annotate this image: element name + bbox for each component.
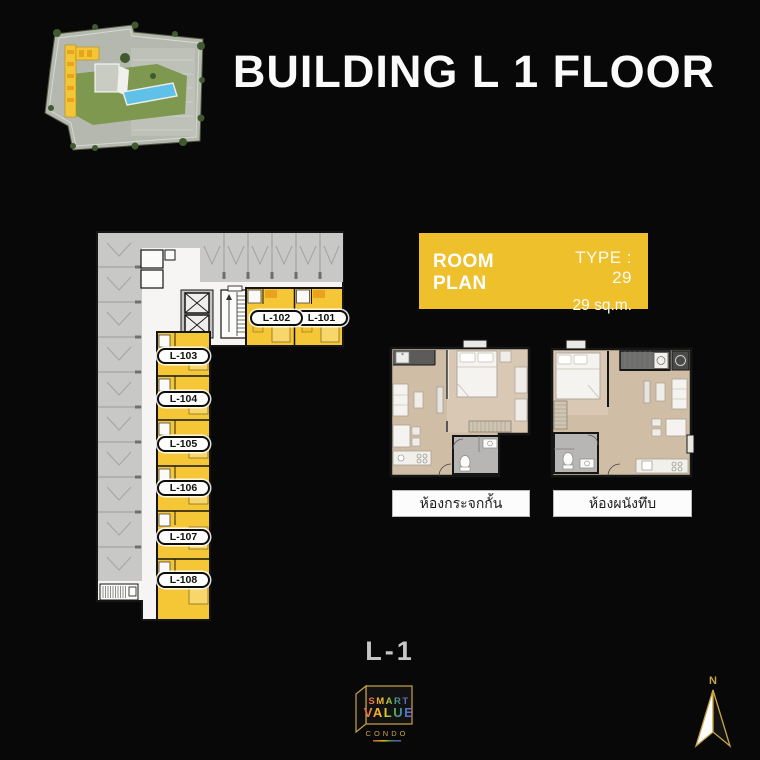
site-plan-map — [35, 18, 220, 158]
compass-north-label: N — [709, 675, 717, 687]
unit-label-l106[interactable]: L-106 — [157, 480, 210, 496]
room-variant-tab-glass[interactable]: ห้องกระจกกั้น — [392, 490, 530, 517]
kitchen — [393, 350, 435, 365]
ramp — [100, 584, 138, 600]
kitchen — [636, 459, 688, 473]
logo-word-condo: CONDO — [366, 729, 409, 738]
parking-left — [98, 233, 142, 581]
room-variant-tab-solid[interactable]: ห้องผนังทึบ — [553, 490, 692, 517]
bed — [556, 353, 600, 399]
north-compass: N — [683, 670, 743, 755]
logo-word-value: VALUE — [364, 705, 415, 720]
wardrobe — [554, 401, 567, 429]
ac-ledge — [566, 340, 586, 349]
bathroom — [554, 433, 598, 473]
compass-arrow-dark-half — [713, 690, 730, 746]
kitchenette — [393, 451, 431, 465]
page: BUILDING L 1 FLOOR — [0, 0, 760, 760]
logo-tagline-bar — [373, 740, 401, 742]
compass-arrow-icon — [696, 690, 713, 746]
page-title: BUILDING L 1 FLOOR — [228, 46, 720, 98]
court-building — [95, 64, 119, 92]
room-area-value: 29 sq.m. — [551, 297, 632, 315]
unit-label-l102[interactable]: L-102 — [250, 310, 303, 326]
ac-ledge — [463, 340, 487, 348]
bathroom — [453, 436, 499, 474]
unit-label-l105[interactable]: L-105 — [157, 436, 210, 452]
bed — [457, 351, 497, 397]
unit-label-l107[interactable]: L-107 — [157, 529, 210, 545]
site-plan-thumbnail — [35, 18, 220, 158]
unit-label-l104[interactable]: L-104 — [157, 391, 210, 407]
room-plan-panel: ROOM PLAN TYPE : 29 29 sq.m. — [419, 233, 648, 309]
balcony — [620, 351, 670, 370]
room-type-value: TYPE : 29 — [551, 248, 632, 288]
side-ledge — [687, 435, 694, 453]
sofa — [393, 384, 408, 416]
floor-plan-drawing — [95, 230, 345, 622]
wardrobe — [469, 421, 511, 432]
ac-unit — [672, 351, 689, 370]
building-floor-plan: L-101 L-102 L-103 L-104 L-105 L-106 L-10… — [95, 230, 345, 622]
unit-label-l103[interactable]: L-103 — [157, 348, 210, 364]
elevator-core — [181, 290, 213, 338]
unit-label-l108[interactable]: L-108 — [157, 572, 210, 588]
room-plan-heading: ROOM PLAN — [433, 251, 551, 295]
floor-label: L-1 — [336, 636, 444, 667]
room-layout-glass-partition — [387, 337, 533, 483]
sofa — [672, 379, 687, 409]
room-layout-solid-wall — [548, 337, 695, 483]
brand-logo: SMART VALUE CONDO — [350, 684, 422, 748]
tv-console — [437, 387, 443, 413]
